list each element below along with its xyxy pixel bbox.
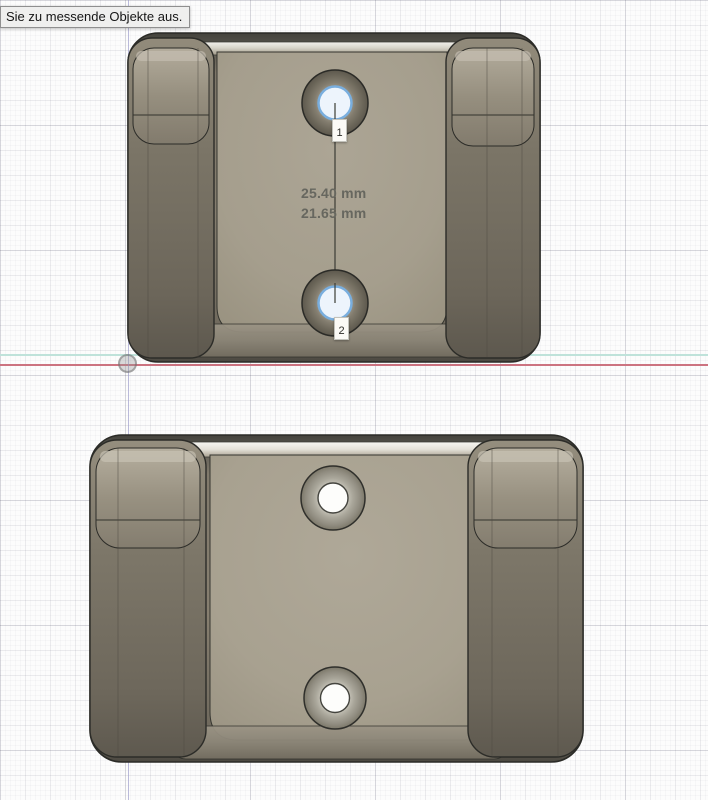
- left-rail[interactable]: [90, 440, 206, 757]
- measure-tooltip-text: Sie zu messende Objekte aus.: [6, 9, 182, 24]
- bottom-fillet: [170, 726, 510, 759]
- measure-point-1-label: 1: [336, 127, 342, 139]
- measurement-distance-2: 21.65 mm: [301, 203, 366, 223]
- measure-point-tag-2: 2: [334, 317, 349, 340]
- measure-point-tag-1: 1: [332, 119, 347, 142]
- origin-point-icon[interactable]: [118, 354, 137, 373]
- hole-1[interactable]: [301, 466, 365, 530]
- right-rail[interactable]: [446, 38, 540, 358]
- left-rail[interactable]: [128, 38, 214, 358]
- right-rail[interactable]: [468, 440, 583, 757]
- measurement-readout: 25.40 mm 21.65 mm: [301, 183, 366, 223]
- measure-tooltip: Sie zu messende Objekte aus.: [0, 6, 190, 28]
- measure-point-2-label: 2: [338, 325, 344, 337]
- bracket-body-bottom[interactable]: [80, 426, 595, 771]
- measurement-distance-1: 25.40 mm: [301, 183, 366, 203]
- cad-viewport[interactable]: 1 2 25.40 mm 21.65 mm Sie zu messende Ob…: [0, 0, 708, 800]
- hole-2[interactable]: [304, 667, 366, 729]
